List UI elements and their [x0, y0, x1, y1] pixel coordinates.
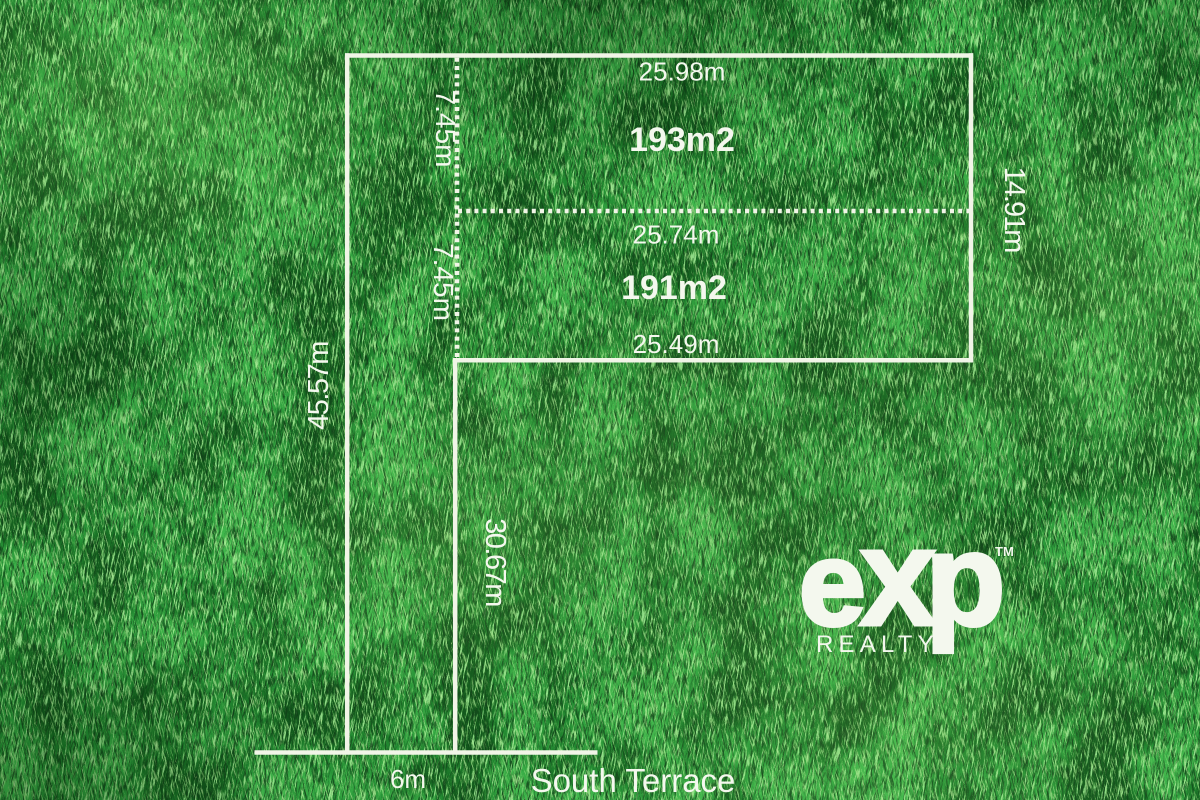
- svg-text:25.49m: 25.49m: [633, 329, 720, 359]
- svg-text:30.67m: 30.67m: [479, 518, 511, 606]
- svg-text:45.57m: 45.57m: [303, 342, 335, 430]
- svg-text:6m: 6m: [390, 764, 426, 794]
- svg-text:TM: TM: [995, 544, 1014, 559]
- svg-text:25.74m: 25.74m: [633, 220, 720, 250]
- svg-text:7.45m: 7.45m: [428, 243, 459, 321]
- svg-text:South Terrace: South Terrace: [531, 762, 736, 799]
- svg-text:25.98m: 25.98m: [639, 57, 726, 87]
- svg-text:7.45m: 7.45m: [430, 90, 461, 168]
- svg-text:REALTY: REALTY: [816, 631, 939, 658]
- svg-text:191m2: 191m2: [621, 269, 727, 307]
- svg-text:14.91m: 14.91m: [998, 167, 1030, 253]
- svg-text:193m2: 193m2: [629, 121, 735, 159]
